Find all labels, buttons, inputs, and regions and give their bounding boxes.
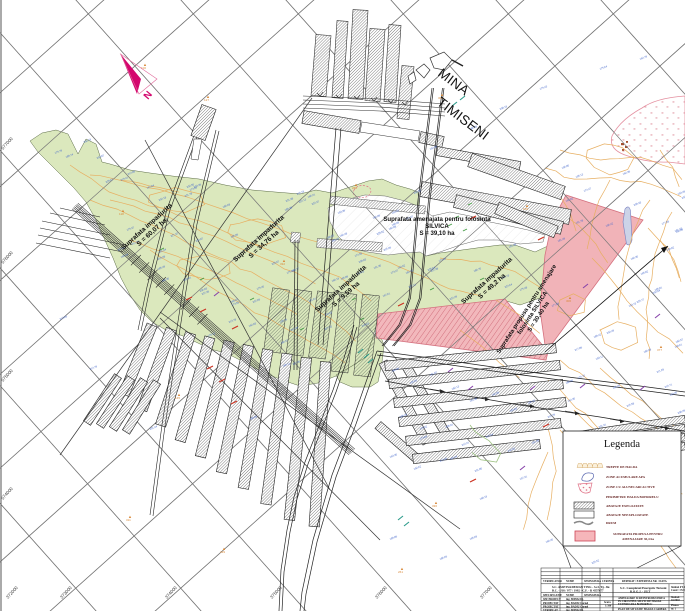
- svg-text:118: 118: [119, 212, 124, 216]
- svg-text:EXTERIOARA BOHORELU: EXTERIOARA BOHORELU: [618, 603, 652, 606]
- svg-text:SEF PROIECT: SEF PROIECT: [543, 598, 561, 601]
- svg-text:332: 332: [280, 262, 285, 266]
- svg-text:NUME: NUME: [566, 594, 574, 597]
- svg-text:100: 100: [141, 66, 146, 70]
- svg-text:R.O.G.J. - JILT: R.O.G.J. - JILT: [630, 589, 650, 593]
- svg-text:ABATAJE NEEXPLOATATE: ABATAJE NEEXPLOATATE: [606, 513, 649, 517]
- svg-text:nr. 1: nr. 1: [671, 608, 677, 611]
- svg-text:145: 145: [175, 396, 180, 400]
- svg-text:Contr: 1722: Contr: 1722: [671, 589, 685, 592]
- svg-text:10/2002: 10/2002: [671, 599, 680, 602]
- svg-text:SPECIFICATIE: SPECIFICATIE: [543, 594, 562, 597]
- svg-text:229: 229: [220, 550, 225, 554]
- svg-text:SUPRAFATA PROPUSA PENTRU: SUPRAFATA PROPUSA PENTRU: [613, 532, 663, 536]
- svg-text:265: 265: [352, 186, 357, 190]
- svg-text:1:500: 1:500: [605, 605, 612, 608]
- svg-text:PERIMETRU HALDA BOHORELU: PERIMETRU HALDA BOHORELU: [606, 495, 659, 499]
- svg-text:REFERAT / EXPERTIZA NR. / DATA: REFERAT / EXPERTIZA NR. / DATA: [622, 580, 667, 583]
- svg-text:S = 39,10 ha: S = 39,10 ha: [419, 230, 455, 237]
- svg-text:DRUM: DRUM: [606, 521, 617, 525]
- svg-text:261: 261: [398, 570, 403, 574]
- svg-text:B.C. - J18 / 977 / 1992 - C.F.: B.C. - J18 / 977 / 1992 - C.F. - R 45576…: [552, 589, 604, 593]
- svg-text:336: 336: [432, 504, 437, 508]
- svg-text:377: 377: [657, 348, 662, 352]
- svg-text:159: 159: [523, 207, 528, 211]
- svg-text:TREPTE DE HALDA: TREPTE DE HALDA: [606, 465, 638, 469]
- svg-text:306: 306: [566, 299, 571, 303]
- svg-text:CERINTA: CERINTA: [602, 580, 614, 583]
- svg-text:VERIFICATOR: VERIFICATOR: [543, 580, 562, 583]
- svg-text:Suprafata amenajata pentru fol: Suprafata amenajata pentru folosinta: [383, 216, 491, 223]
- svg-text:SEMNATURA: SEMNATURA: [584, 594, 601, 597]
- svg-text:311: 311: [126, 518, 131, 522]
- svg-text:ZONE CU ALUNECARI ACTIVE: ZONE CU ALUNECARI ACTIVE: [606, 485, 656, 489]
- svg-text:NUME: NUME: [566, 580, 574, 583]
- svg-text:ABATAJE EXPLOATATE: ABATAJE EXPLOATATE: [606, 504, 645, 508]
- svg-text:Legenda: Legenda: [604, 439, 640, 450]
- svg-text:SILVICA: SILVICA: [425, 223, 449, 230]
- svg-text:AMENAJARE 30,4 ha: AMENAJARE 30,4 ha: [622, 537, 654, 541]
- svg-text:SEMNATURA: SEMNATURA: [584, 580, 601, 583]
- svg-text:ing. MIHAI Dj.: ing. MIHAI Dj.: [566, 598, 584, 601]
- svg-text:127: 127: [204, 98, 209, 102]
- svg-text:ZONE ACUMULARE APA: ZONE ACUMULARE APA: [606, 475, 646, 479]
